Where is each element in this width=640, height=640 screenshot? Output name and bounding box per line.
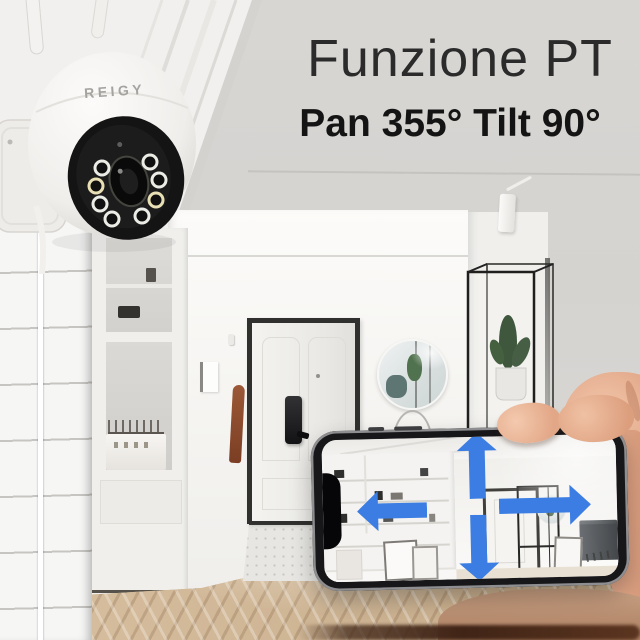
mirror-highlight [409,339,448,371]
mirror-chair-reflection [386,375,407,398]
light-switch [200,362,218,392]
camera-antenna [91,0,109,39]
hand-shadow [298,625,640,640]
headline-title: Funzione PT [272,30,640,88]
wall-ceiling-line [248,170,640,175]
ceiling-spotlight-arm [506,176,532,192]
marketing-banner: REIGY Funzione PT Pan 355° Tilt 90° [0,0,640,640]
smartphone [310,424,630,591]
door-peephole [316,374,320,378]
phone-screen [321,434,618,583]
cactus-pot [496,368,526,400]
screen-appliance [336,549,363,580]
tile-grout-line [38,218,43,640]
camera-antenna [25,0,43,54]
phone-volume-button [394,426,422,431]
shelf-decor-item [118,306,140,318]
cabinet-drawer [100,480,182,524]
wall-mirror [377,339,448,410]
tiled-wall [0,218,92,640]
phone-notch [322,473,342,549]
security-camera: REIGY [0,0,234,274]
screen-picture-frame [412,546,439,581]
ceiling-spotlight [498,194,516,233]
headline-subtitle: Pan 355° Tilt 90° [250,98,640,150]
wall-hook [228,334,234,345]
countertop-appliance [106,434,166,470]
wire-rack [108,420,164,434]
cabinet-shelf [106,284,172,288]
appliance-buttons [114,442,154,448]
phone-volume-button [368,427,384,431]
